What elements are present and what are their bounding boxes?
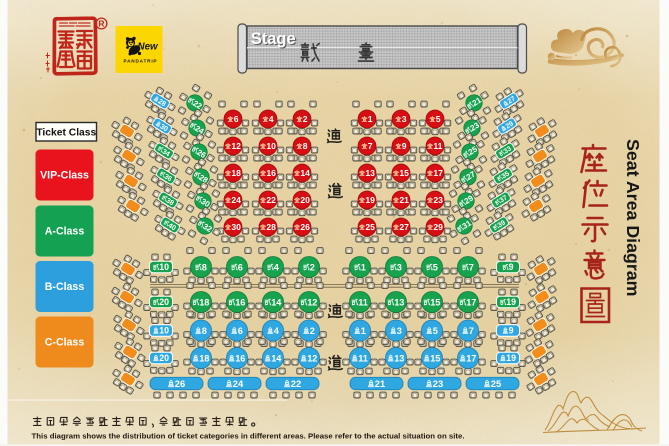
svg-text:5: 5: [433, 326, 438, 336]
svg-text:23: 23: [433, 195, 443, 205]
svg-text:4: 4: [269, 114, 274, 124]
svg-text:4: 4: [274, 262, 280, 272]
svg-text:22: 22: [266, 195, 276, 205]
svg-text:5: 5: [436, 114, 441, 124]
svg-text:VIP-Class: VIP-Class: [40, 170, 89, 182]
svg-text:23: 23: [433, 378, 443, 389]
svg-text:17: 17: [433, 168, 443, 178]
svg-text:18: 18: [231, 168, 241, 178]
svg-text:18: 18: [199, 353, 209, 363]
svg-text:6: 6: [234, 114, 239, 124]
svg-text:13: 13: [365, 168, 375, 178]
svg-text:2: 2: [310, 262, 315, 272]
svg-text:20: 20: [159, 353, 169, 363]
svg-text:12: 12: [231, 141, 241, 151]
svg-text:19: 19: [506, 353, 516, 363]
svg-text:14: 14: [271, 353, 282, 363]
svg-text:A-Class: A-Class: [45, 226, 85, 238]
svg-text:8: 8: [303, 141, 308, 151]
svg-text:28: 28: [266, 222, 276, 232]
svg-text:Seat Area Diagram: Seat Area Diagram: [623, 139, 643, 296]
svg-text:6: 6: [238, 326, 243, 336]
svg-text:This diagram shows the distrib: This diagram shows the distribution of t…: [32, 431, 465, 440]
svg-text:4: 4: [274, 326, 280, 336]
svg-text:19: 19: [506, 297, 516, 307]
svg-text:30: 30: [231, 222, 241, 232]
svg-text:2: 2: [310, 326, 315, 336]
svg-text:10: 10: [159, 326, 169, 336]
svg-text:1: 1: [368, 114, 373, 124]
svg-text:11: 11: [358, 353, 368, 363]
svg-text:25: 25: [491, 378, 501, 389]
svg-text:2: 2: [303, 114, 308, 124]
svg-text:Stage: Stage: [251, 30, 296, 48]
svg-text:18: 18: [199, 297, 209, 307]
svg-text:14: 14: [271, 297, 282, 307]
svg-text:29: 29: [433, 222, 443, 232]
svg-text:1: 1: [361, 262, 366, 272]
svg-text:17: 17: [466, 353, 476, 363]
svg-text:26: 26: [300, 222, 310, 232]
svg-text:21: 21: [399, 195, 409, 205]
svg-text:15: 15: [430, 353, 440, 363]
svg-text:11: 11: [358, 297, 368, 307]
svg-text:24: 24: [233, 378, 244, 389]
svg-text:New: New: [138, 42, 160, 53]
svg-text:21: 21: [375, 378, 385, 389]
svg-text:16: 16: [235, 297, 245, 307]
svg-text:13: 13: [394, 297, 404, 307]
svg-text:22: 22: [291, 378, 301, 389]
svg-text:26: 26: [175, 378, 185, 389]
svg-text:9: 9: [509, 326, 514, 336]
svg-text:C-Class: C-Class: [45, 337, 85, 349]
svg-text:12: 12: [307, 353, 317, 363]
svg-text:9: 9: [402, 141, 407, 151]
svg-text:10: 10: [159, 262, 169, 272]
svg-text:Ticket Class: Ticket Class: [36, 127, 96, 138]
svg-text:7: 7: [469, 326, 474, 336]
svg-text:14: 14: [300, 168, 310, 178]
svg-text:10: 10: [266, 141, 276, 151]
svg-text:5: 5: [433, 262, 438, 272]
svg-text:3: 3: [402, 114, 407, 124]
svg-text:1: 1: [361, 326, 366, 336]
svg-text:13: 13: [394, 353, 404, 363]
svg-text:PANDATRIP: PANDATRIP: [124, 59, 158, 64]
svg-text:20: 20: [159, 297, 169, 307]
svg-text:8: 8: [202, 326, 207, 336]
svg-text:3: 3: [397, 326, 402, 336]
svg-text:11: 11: [433, 141, 442, 151]
svg-text:27: 27: [399, 222, 409, 232]
svg-text:16: 16: [235, 353, 245, 363]
svg-text:7: 7: [469, 262, 474, 272]
svg-text:12: 12: [307, 297, 317, 307]
svg-text:19: 19: [365, 195, 375, 205]
svg-text:B-Class: B-Class: [45, 281, 85, 293]
svg-text:24: 24: [231, 195, 241, 205]
svg-text:R: R: [98, 19, 104, 29]
svg-text:15: 15: [430, 297, 440, 307]
svg-text:20: 20: [300, 195, 310, 205]
svg-text:25: 25: [365, 222, 375, 232]
svg-text:7: 7: [368, 141, 373, 151]
svg-text:9: 9: [509, 262, 514, 272]
svg-text:6: 6: [238, 262, 243, 272]
svg-text:16: 16: [266, 168, 276, 178]
svg-text:17: 17: [466, 297, 476, 307]
svg-text:3: 3: [397, 262, 402, 272]
svg-text:8: 8: [202, 262, 207, 272]
svg-text:15: 15: [399, 168, 409, 178]
